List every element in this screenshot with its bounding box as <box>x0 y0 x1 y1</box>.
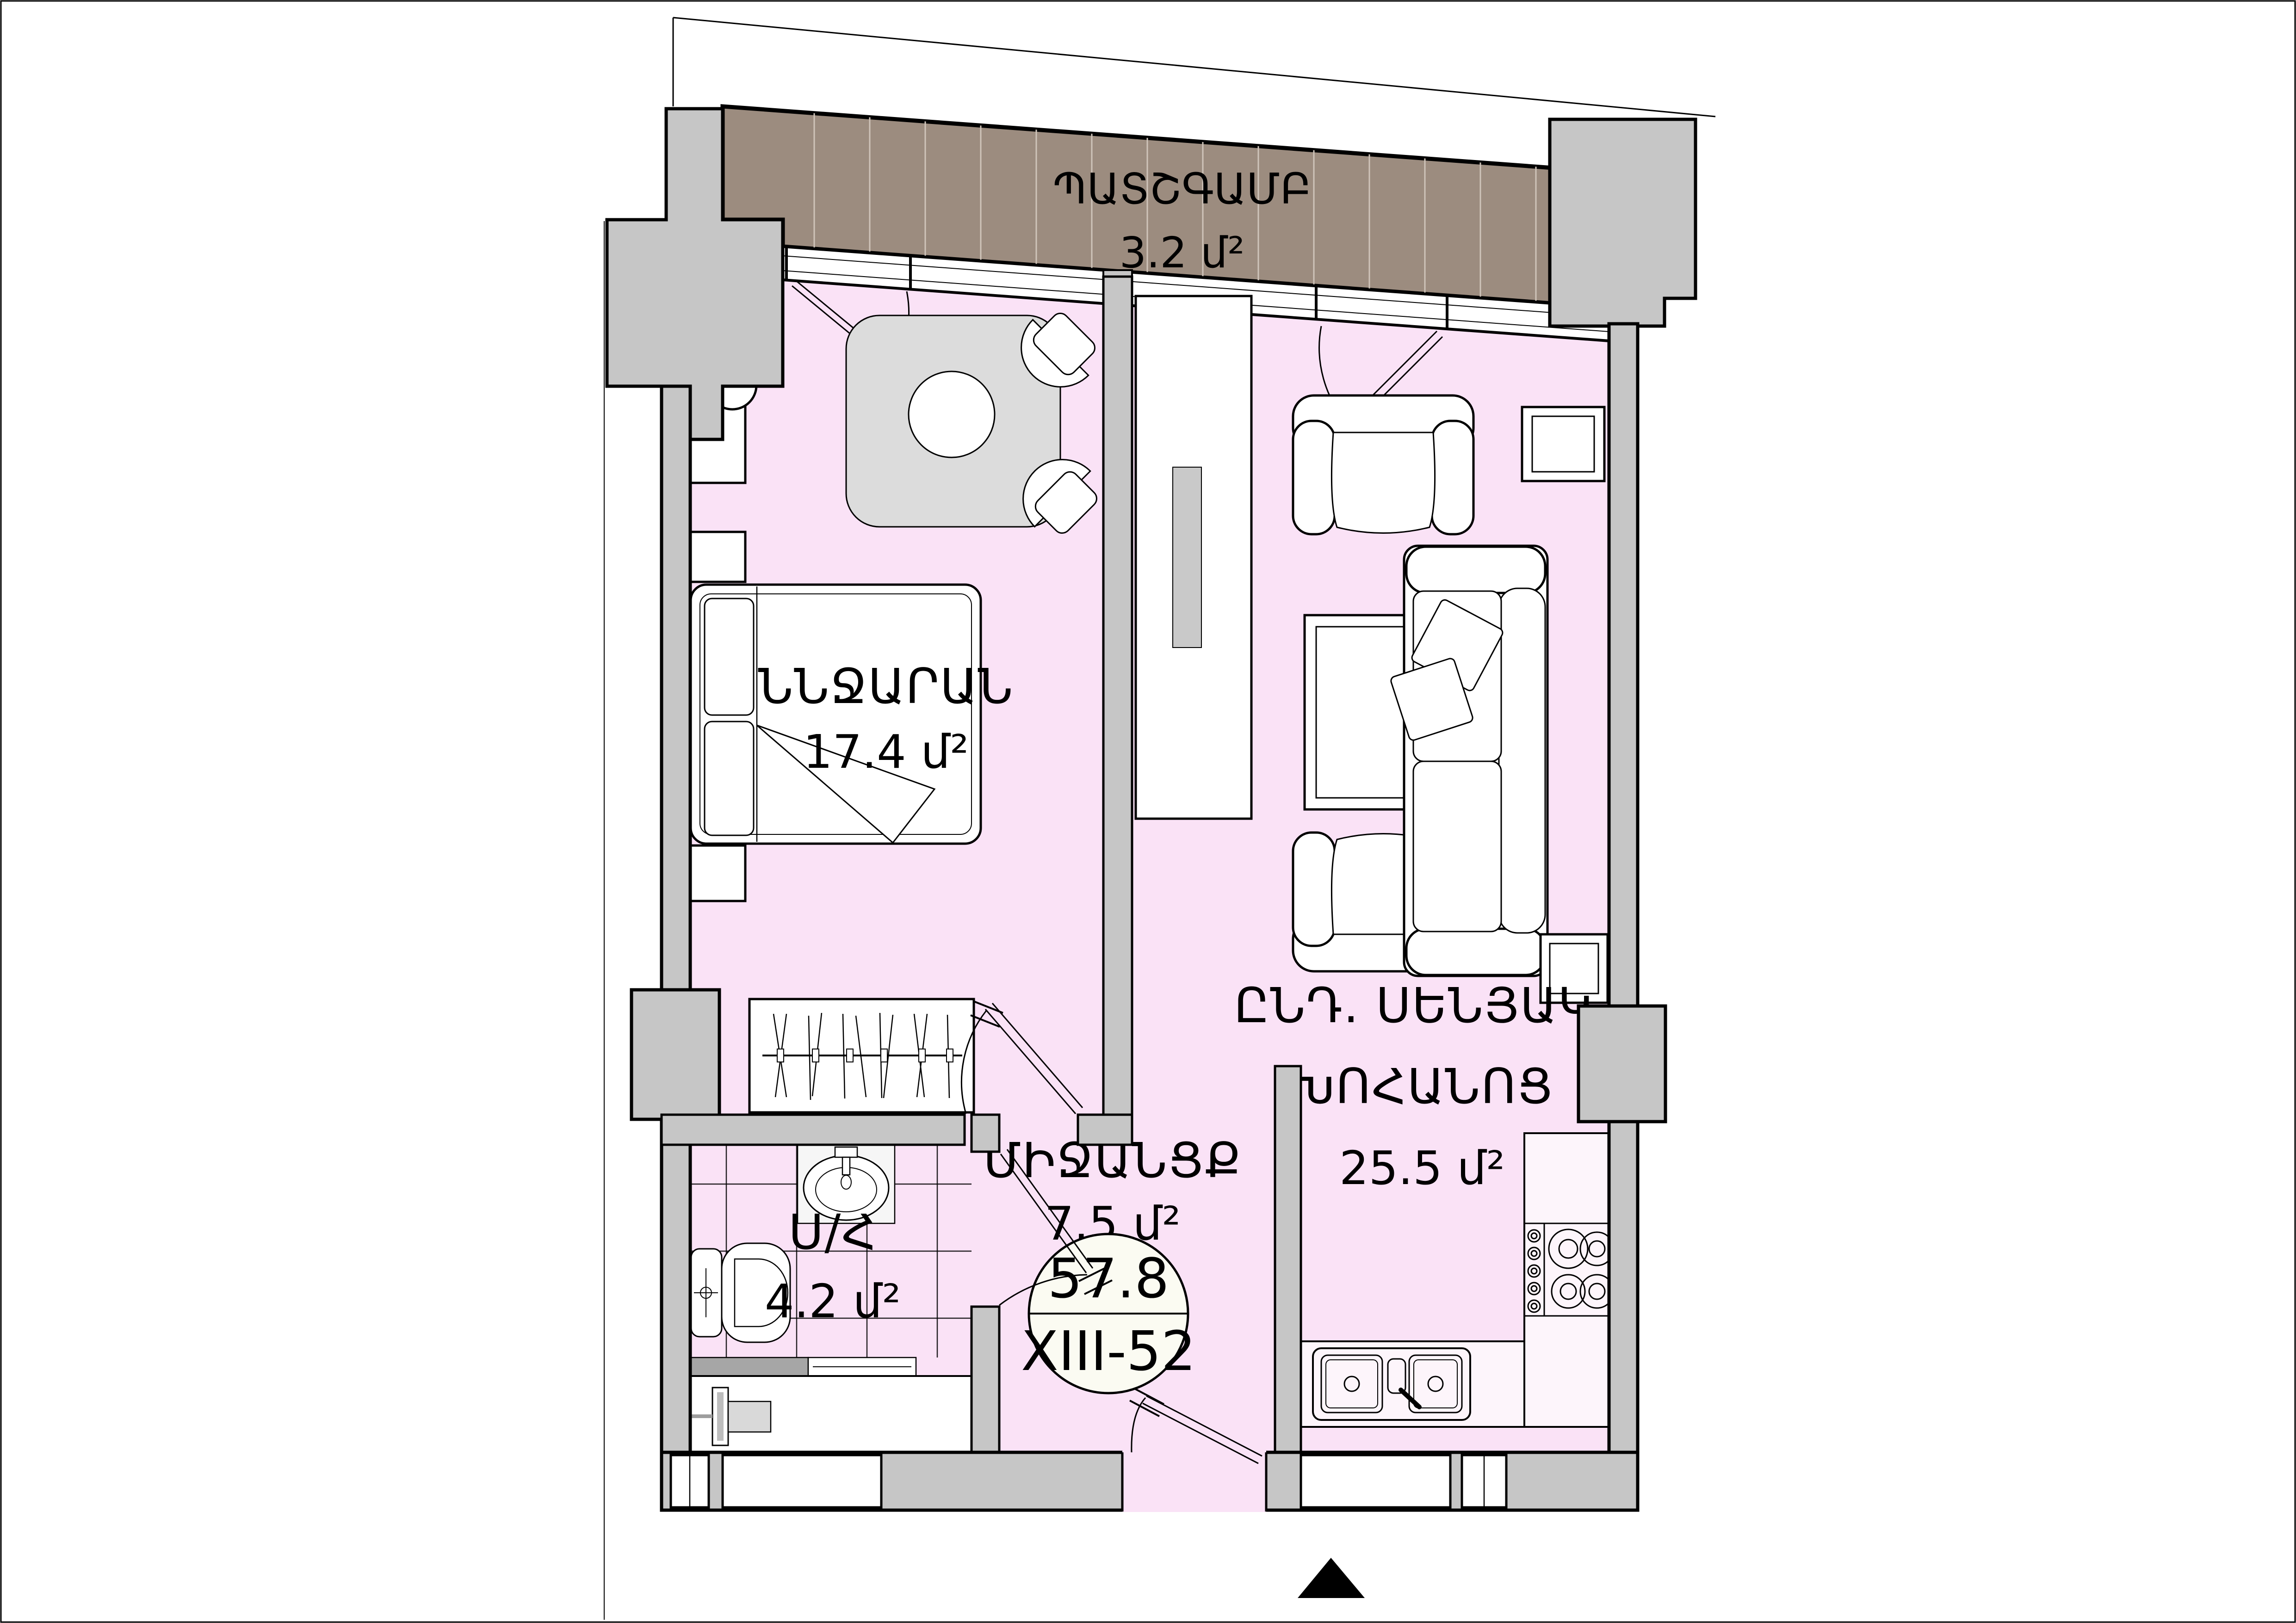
living-name-line2: ԽՈՀԱՆՈՑ <box>1290 1058 1553 1115</box>
nightstand-top <box>691 532 745 582</box>
armchair <box>1293 395 1473 534</box>
sofa-back <box>1499 588 1545 933</box>
column-right-mid <box>1578 1006 1665 1122</box>
living-area: 25.5 մ² <box>1339 1141 1505 1195</box>
floor-plan-canvas: ՊԱՏՇԳԱՄԲ 3.2 մ² <box>0 0 2296 1623</box>
window <box>1462 1455 1506 1507</box>
wall-partition <box>1103 277 1132 1145</box>
shower-divider <box>690 1358 808 1376</box>
entrance-arrow-icon <box>1298 1558 1365 1598</box>
sofa <box>1390 546 1547 976</box>
wall-left <box>662 386 690 1510</box>
kitchen-counter-right <box>1524 1133 1609 1427</box>
unit-code: XIII-52 <box>1021 1319 1196 1383</box>
round-table <box>909 371 995 457</box>
window <box>723 1455 881 1507</box>
wall-right <box>1609 324 1638 1510</box>
side-table <box>1522 407 1604 481</box>
wall-bathroom-east <box>972 1307 999 1452</box>
window <box>1301 1455 1450 1507</box>
pillow <box>705 599 754 715</box>
wall-bedroom-south <box>662 1115 965 1145</box>
unit-total-area: 57.8 <box>1048 1247 1170 1310</box>
column-left-mid <box>631 990 719 1119</box>
living-name-line1: ԸՆԴ. ՍԵՆՅԱԿ, <box>1234 977 1610 1034</box>
pillow <box>705 722 754 835</box>
wardrobe <box>749 999 974 1112</box>
wall-kitchen <box>1275 1066 1301 1452</box>
bathroom-area: 4.2 մ² <box>765 1274 901 1328</box>
column-top-right <box>1550 119 1696 326</box>
nightstand-bottom <box>691 845 745 901</box>
balcony-name: ՊԱՏՇԳԱՄԲ <box>1053 164 1312 214</box>
wall-bathroom-east <box>972 1115 999 1152</box>
bathroom-name: Ս/Հ <box>788 1204 877 1260</box>
bedroom-name: ՆՆՋԱՐԱՆ <box>758 658 1014 715</box>
tv <box>1173 467 1201 648</box>
bedroom-area: 17.4 մ² <box>803 725 969 779</box>
wall-bedroom-south <box>1078 1115 1132 1145</box>
sofa-seat <box>1413 761 1501 932</box>
kitchen-counter-bottom <box>1301 1341 1524 1427</box>
sofa-armrest <box>1406 547 1545 593</box>
sofa-armrest <box>1406 929 1545 975</box>
balcony-area: 3.2 մ² <box>1120 228 1245 278</box>
window <box>671 1455 709 1507</box>
